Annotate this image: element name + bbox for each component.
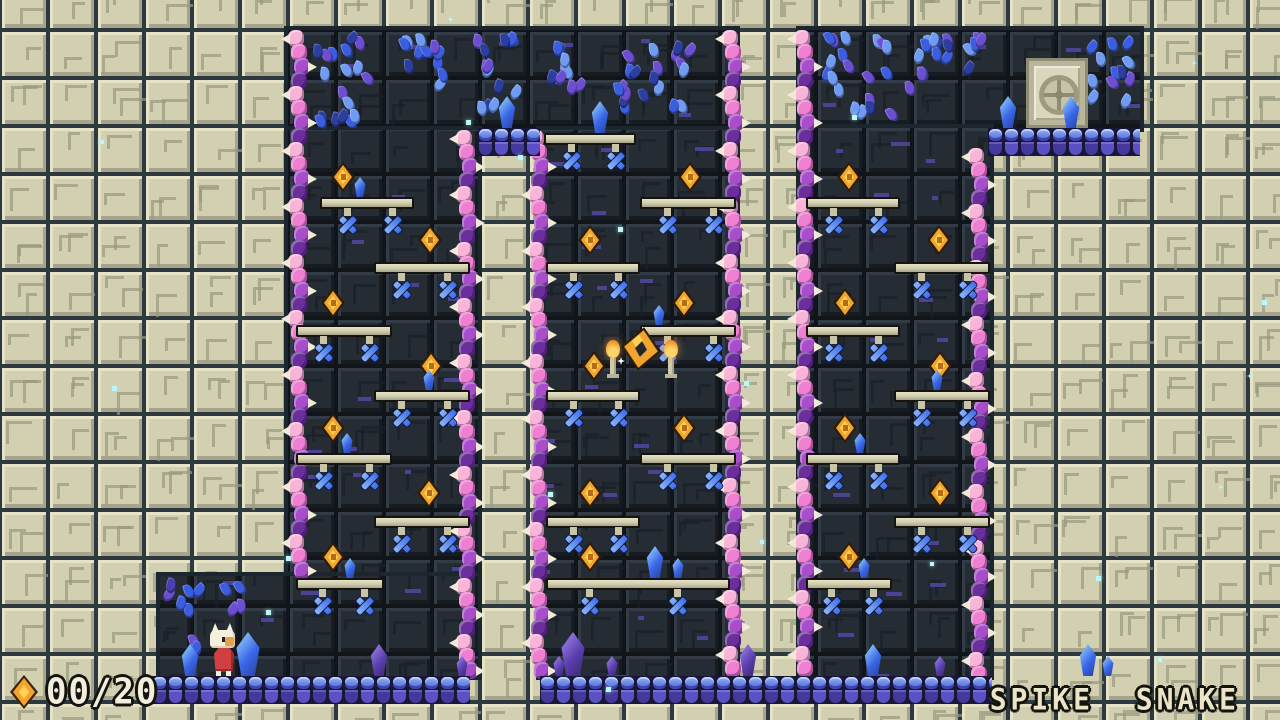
tile-etch [1224,478,1250,497]
floor-stud [393,677,406,689]
tile-etch [255,341,272,360]
tile-etch [18,244,41,256]
vine-thorn [449,582,458,592]
gem-mark [331,300,336,306]
floor-scallop [1005,142,1018,155]
crystal-spike [657,470,677,490]
gem-mark [938,490,943,496]
tile-etch [71,328,89,346]
stone-tile [146,176,190,220]
sparkle [760,540,764,544]
vine-segment [725,660,741,677]
floor-scallop [345,690,358,703]
tile-etch [219,484,242,500]
tile-etch [698,384,710,396]
crystal-spike [823,342,843,362]
tile-etch [353,284,376,304]
gem-mark [937,237,942,243]
stone-tile [2,0,46,28]
crystal-spike [563,407,583,427]
floor-stud [637,677,650,689]
tile-etch [1017,236,1033,253]
stone-tile [194,176,238,220]
stone-tile [1202,32,1246,76]
floor-scallop [989,142,1002,155]
tile-etch [645,663,672,676]
vine-thorn [449,246,458,256]
tile-accent [891,142,910,146]
platform-ledge [640,325,736,337]
stone-tile [194,0,238,28]
tile-etch [1177,566,1199,577]
stone-tile [242,512,286,556]
player-muzzle [225,637,234,646]
leaf [881,40,893,56]
stone-tile [866,704,910,720]
vine-thorn [787,650,796,660]
tile-etch [206,85,228,104]
stone-tile [98,176,142,220]
platform-ledge [374,390,470,402]
vine-thorn [476,666,485,676]
gem-mark [688,174,693,180]
vine-thorn [742,510,751,520]
tile-etch [306,1,324,15]
crystal-spike [391,279,411,299]
stone-tile [194,128,238,172]
vine-thorn [715,146,724,156]
vine-thorn [449,190,458,200]
vine-thorn [476,610,485,620]
floor-scallop [201,690,214,703]
tile-etch [122,288,143,307]
torch-post [668,358,674,374]
vine-thorn [715,538,724,548]
stone-tile [50,0,94,28]
tile-etch [1173,431,1200,454]
vine-thorn [787,426,796,436]
crystal-spike [703,214,723,234]
tile-etch [393,146,408,157]
tile-etch [633,481,659,503]
tile-etch [1225,50,1242,69]
tile-etch [1260,98,1280,122]
leaf-cluster [310,30,378,130]
cave-tile [914,176,958,220]
stone-tile [1010,224,1054,268]
sparkle [548,492,553,497]
stone-tile [1010,0,1054,28]
tile-etch [1125,567,1153,579]
platform-ledge [546,516,640,528]
stone-tile [1202,128,1246,172]
stone-tile [1058,0,1102,28]
stone-tile [50,128,94,172]
floor-stud [527,129,540,141]
stone-tile [1154,80,1198,124]
floor-stud [1053,129,1066,141]
floor-scallop [217,690,230,703]
vine-thorn [814,230,823,240]
tile-etch [119,336,146,358]
floor-stud [1005,129,1018,141]
tile-etch [929,132,957,156]
stone-tile [482,512,526,556]
stone-tile [1250,368,1280,412]
vine-thorn [476,274,485,284]
stone-tile [1250,128,1280,172]
floor-scallop [479,142,492,155]
vine-thorn [281,482,290,492]
vine-thorn [521,470,530,480]
stone-tile [674,0,718,28]
tile-etch [72,429,89,450]
stone-tile [2,272,46,316]
tile-etch [201,54,221,70]
crystal-spike [313,342,333,362]
crystal-spike [868,470,888,490]
cave-tile [626,272,670,316]
platform-ledge [296,325,392,337]
platform-ledge [894,262,990,274]
vine-thorn [281,202,290,212]
floor-scallop [361,690,374,703]
vine-thorn [308,286,317,296]
stone-tile [962,0,1006,28]
tile-etch [645,247,661,270]
tile-etch [1163,527,1183,550]
vine-thorn [961,320,970,330]
crystal-spike [382,214,402,234]
gem-mark [429,363,434,369]
crystal-spike [657,214,677,234]
floor-scallop [573,690,586,703]
torch-flame [664,340,678,358]
stone-tile [194,704,238,720]
tile-etch [64,57,82,69]
vine-thorn [521,190,530,200]
tile-etch [1064,516,1090,527]
floor-scallop [653,690,666,703]
floor-stud [797,677,810,689]
gem-mark [682,425,687,431]
tile-etch [23,85,42,105]
tile-etch [822,532,844,553]
stone-tile [98,224,142,268]
floor-stud [861,677,874,689]
tile-etch [1079,379,1103,394]
stone-tile [866,0,910,28]
stone-tile [194,464,238,508]
leaf [350,108,360,123]
brick-ledge [988,128,1140,156]
hud-coin-counter: 00/20 [10,672,158,712]
stone-tile [146,464,190,508]
tile-etch [494,432,505,454]
player-head [210,630,235,648]
floor-stud [829,677,842,689]
leaf-cluster [543,30,599,96]
tile-accent [932,196,938,200]
game-viewport[interactable]: 00/20 SPIKE SNAKE [0,0,1280,720]
tile-etch [160,576,161,595]
tile-accent [640,279,653,283]
stone-tile [482,560,526,604]
sparkle [266,610,271,615]
tile-accent [838,633,854,637]
brick-floor [152,676,470,704]
tile-etch [585,433,599,456]
stone-tile [98,416,142,460]
leaf [861,68,877,86]
vine-thorn [521,302,530,312]
tile-etch [218,380,230,399]
floor-scallop [557,690,570,703]
stone-tile [578,704,622,720]
leaf-cluster [220,578,254,626]
stone-tile [1106,176,1150,220]
vine-thorn [449,358,458,368]
leaf [360,70,376,88]
stone-tile [1106,464,1150,508]
vine-thorn [476,218,485,228]
stone-tile [338,0,382,28]
vine-thorn [988,348,997,358]
vine-thorn [742,118,751,128]
tile-etch [157,439,172,461]
stone-tile [626,704,670,720]
tile-accent [603,493,617,497]
stone-tile [98,272,142,316]
stone-tile [1010,368,1054,412]
tile-etch [1078,631,1092,647]
floor-scallop [1101,142,1114,155]
crystal-spike [667,595,687,615]
stone-tile [1106,512,1150,556]
tile-etch [253,97,269,118]
cave-tile [914,128,958,172]
stone-tile [1106,320,1150,364]
floor-stud [479,129,492,141]
tile-etch [206,339,227,361]
vine-thorn [281,314,290,324]
stone-tile [1106,272,1150,316]
vine-thorn [449,470,458,480]
stone-tile [1058,464,1102,508]
stone-tile [146,320,190,364]
vine-thorn [787,594,796,604]
tile-etch [1034,524,1059,544]
tile-etch [1269,238,1280,249]
tile-etch [920,437,935,451]
leaf [492,78,507,96]
tile-accent [634,444,649,448]
tile-etch [1027,190,1049,208]
stone-tile [1058,224,1102,268]
floor-scallop [527,142,540,155]
vine-thorn [814,342,823,352]
stone-tile [2,464,46,508]
leaf [841,31,853,47]
stone-tile [1154,32,1198,76]
stone-tile [482,704,526,720]
stone-tile [1010,560,1054,604]
tile-etch [832,437,851,454]
floor-stud [265,677,278,689]
tile-etch [212,424,226,447]
crystal-spike [313,470,333,490]
tile-etch [1212,383,1227,401]
vine-thorn [548,610,557,620]
stone-tile [1106,416,1150,460]
tile-etch [59,235,83,251]
stone-tile [482,272,526,316]
crystal-spike [957,533,977,553]
floor-stud [749,677,762,689]
platform-ledge [296,578,384,590]
stone-tile [194,32,238,76]
floor-scallop [1133,142,1140,155]
floor-scallop [717,690,730,703]
tile-etch [1259,530,1275,549]
platform-ledge [544,133,636,145]
tile-etch [878,296,897,313]
stone-tile [1202,0,1246,28]
floor-stud [217,677,230,689]
tile-etch [540,4,553,19]
stone-tile [1010,176,1054,220]
stone-tile [2,560,46,604]
tile-accent [926,159,935,163]
leaf [232,578,248,596]
leaf [884,105,900,123]
torch-base [665,374,677,378]
stone-tile [482,368,526,412]
stone-tile [98,128,142,172]
tile-etch [198,241,225,255]
sparkle [618,227,623,232]
stone-tile [2,608,46,652]
tile-etch [1032,249,1045,265]
crystal-spike [608,279,628,299]
gem-mark [843,300,848,306]
crystal-spike [703,470,723,490]
leaf [637,87,651,104]
stone-tile [530,0,574,28]
leaf-cluster [612,34,696,126]
tile-etch [69,293,95,310]
stone-tile [242,176,286,220]
tile-etch [1064,473,1079,495]
vine-thorn [787,90,796,100]
floor-stud [973,677,986,689]
tile-etch [263,187,280,210]
tile-etch [255,0,272,14]
floor-stud [557,677,570,689]
floor-stud [441,677,454,689]
tile-etch [392,104,405,127]
vine-thorn [988,572,997,582]
stone-tile [1058,512,1102,556]
vine-thorn [742,62,751,72]
stone-tile [1154,464,1198,508]
crystal-spike [608,533,628,553]
stone-tile [1202,368,1246,412]
tile-etch [361,426,386,450]
tile-etch [361,564,389,576]
vine-thorn [961,432,970,442]
tile-etch [393,621,421,634]
gem-mark [682,300,687,306]
cave-tile [338,272,382,316]
torch-post [610,358,616,374]
stone-tile [1058,608,1102,652]
tile-accent [937,338,948,342]
tile-etch [68,132,80,150]
floor-stud [1069,129,1082,141]
floor-scallop [495,142,508,155]
coin-gem-icon [10,675,38,709]
vine-thorn [988,236,997,246]
tile-etch [1216,243,1229,261]
tile-etch [1164,0,1175,13]
floor-stud [169,677,182,689]
sparkle [852,115,857,120]
crystal-spike [821,595,841,615]
stone-tile [146,272,190,316]
crystal-spike [437,407,457,427]
tile-etch [218,149,242,160]
tile-etch [1177,614,1197,632]
leaf [1118,92,1135,110]
tile-etch [105,276,124,288]
tile-accent [697,636,708,640]
tile-etch [313,632,332,646]
stone-tile [194,320,238,364]
tile-etch [117,526,134,546]
stone-tile [50,368,94,412]
crystal-spike [359,470,379,490]
cave-tile [674,512,718,556]
tile-etch [252,188,263,200]
tile-etch [1256,7,1280,29]
crystal-spike [957,279,977,299]
tile-etch [1071,238,1083,256]
tile-etch [20,532,45,552]
sparkle [930,562,934,566]
cave-tile [674,656,718,676]
tile-etch [880,631,896,654]
gem-mark [847,554,852,560]
thorn-vine [528,130,550,676]
floor-stud [1117,129,1130,141]
stone-tile [578,0,622,28]
tile-etch [644,283,661,305]
stone-tile [290,704,334,720]
tile-accent [358,397,371,401]
leaf [479,42,491,58]
stone-tile [626,0,670,28]
tile-etch [636,529,663,544]
vine-thorn [814,622,823,632]
stone-tile [146,368,190,412]
floor-scallop [1053,142,1066,155]
floor-scallop [765,690,778,703]
thorn-vine [288,30,310,576]
crystal-spike [437,279,457,299]
floor-stud [717,677,730,689]
tile-etch [25,574,48,596]
